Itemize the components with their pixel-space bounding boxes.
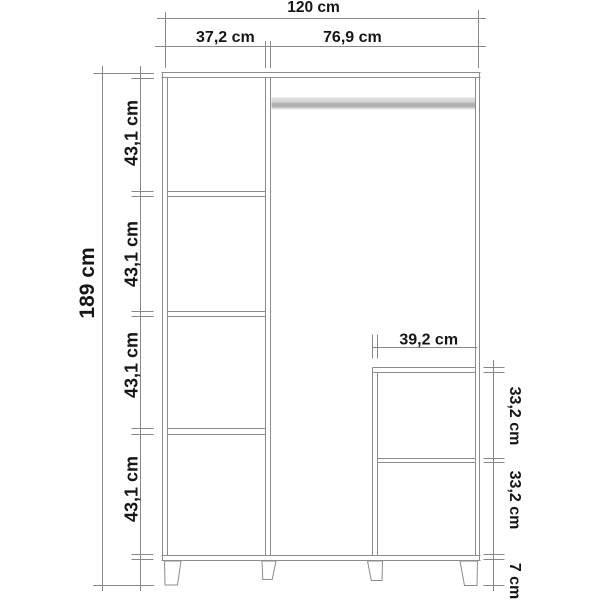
svg-text:120 cm: 120 cm (287, 0, 340, 16)
svg-text:76,9 cm: 76,9 cm (323, 29, 382, 46)
svg-text:189 cm: 189 cm (76, 247, 99, 318)
svg-text:37,2 cm: 37,2 cm (196, 29, 255, 46)
svg-text:33,2 cm: 33,2 cm (506, 471, 523, 530)
svg-text:39,2 cm: 39,2 cm (399, 332, 458, 349)
svg-text:33,2 cm: 33,2 cm (506, 387, 523, 446)
svg-text:43,1 cm: 43,1 cm (122, 456, 142, 522)
svg-text:43,1 cm: 43,1 cm (122, 332, 142, 398)
svg-text:43,1 cm: 43,1 cm (122, 221, 142, 287)
svg-text:43,1 cm: 43,1 cm (122, 100, 142, 166)
svg-text:7 cm: 7 cm (506, 563, 523, 599)
